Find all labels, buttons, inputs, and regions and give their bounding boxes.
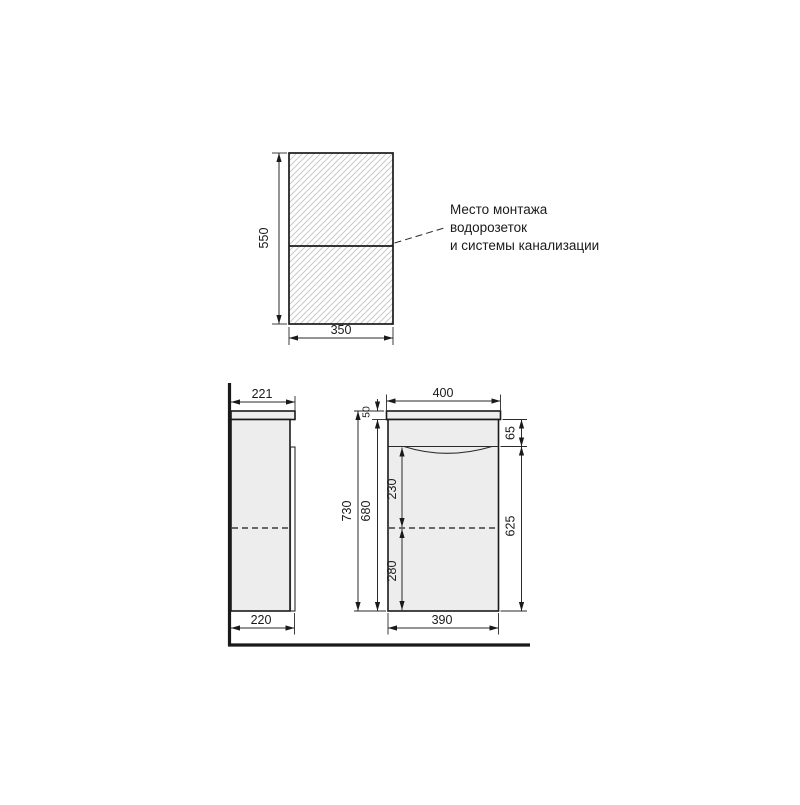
dimension-680: 680 [359,420,386,612]
dim-680-label: 680 [359,501,373,522]
annotation-line-3: и системы канализации [450,238,599,253]
side-cabinet-body [231,420,290,612]
dim-550-label: 550 [257,228,271,249]
side-view: 221 220 [231,387,295,635]
dimension-65: 65 [501,420,528,447]
dim-221-label: 221 [252,387,273,401]
dimension-220: 220 [231,613,295,635]
annotation-line-2: водорозеток [450,220,527,235]
leader-line [395,228,445,243]
dim-280-label: 280 [385,561,399,582]
dimension-350: 350 [289,323,393,345]
dim-50-label: 50 [361,406,373,418]
dim-220-label: 220 [251,613,272,627]
dim-65-label: 65 [504,426,518,440]
dimension-390: 390 [388,613,499,635]
mounting-annotation: Место монтажа водорозеток и системы кана… [395,202,600,253]
dimension-550: 550 [257,153,287,324]
dim-350-label: 350 [331,323,352,337]
front-countertop [387,411,501,420]
wall-niche-view: 550 350 Место монтажа водорозеток и сист… [257,153,599,345]
dim-390-label: 390 [432,613,453,627]
dimension-50: 50 [361,399,378,418]
technical-drawing-canvas: 550 350 Место монтажа водорозеток и сист… [0,0,800,800]
dim-230-label: 230 [385,479,399,500]
dim-625-label: 625 [504,516,518,537]
side-countertop [231,411,295,420]
dimension-400: 400 [387,386,501,410]
annotation-line-1: Место монтажа [450,202,548,217]
front-cabinet-body [388,420,499,612]
dimension-625: 625 [501,447,528,612]
mounting-area-hatched-rect [289,153,393,324]
dimension-221: 221 [231,387,295,410]
side-door-panel [291,447,296,611]
dim-400-label: 400 [433,386,454,400]
dim-730-label: 730 [340,501,354,522]
front-view: 400 730 680 50 230 280 [340,386,527,635]
vanity-drawing-svg: 550 350 Место монтажа водорозеток и сист… [0,0,800,800]
